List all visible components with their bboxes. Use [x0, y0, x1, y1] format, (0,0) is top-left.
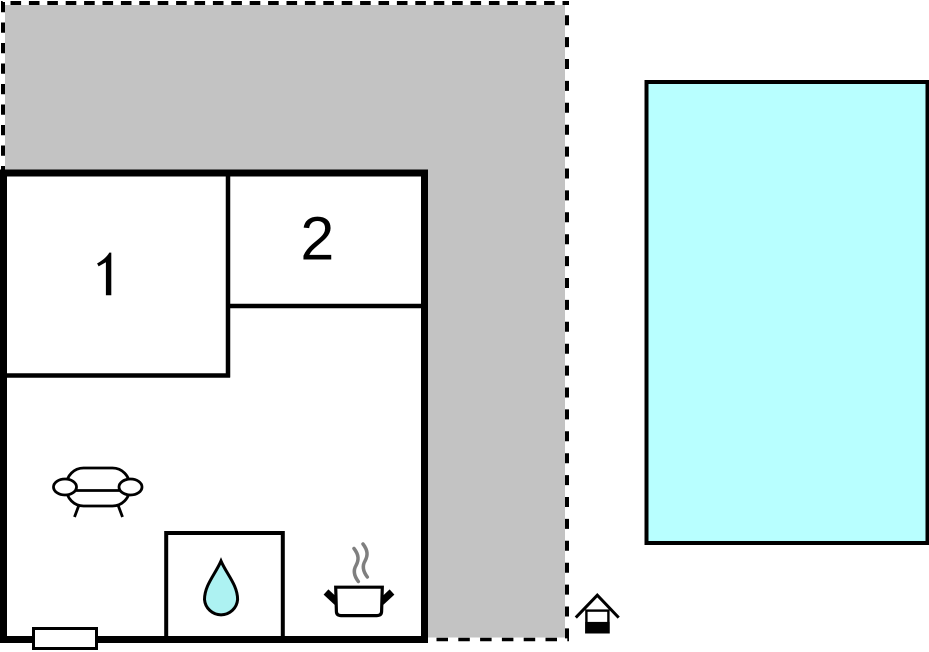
svg-text:2: 2 — [300, 204, 334, 272]
